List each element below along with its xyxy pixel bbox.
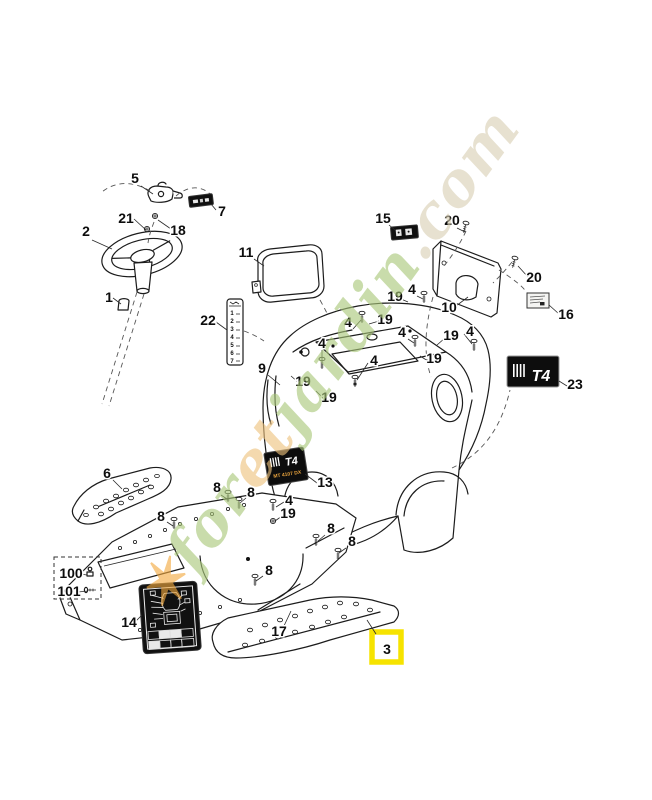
callout-4: 4: [466, 323, 474, 339]
callout-16: 16: [558, 306, 574, 322]
callout-8: 8: [327, 520, 335, 536]
callout-14: 14: [121, 614, 137, 630]
icon-decal-part-15: [390, 225, 418, 240]
callout-4: 4: [344, 314, 352, 330]
parts-diagram-page: 1234567: [0, 0, 652, 800]
callout-3: 3: [383, 641, 391, 657]
callout-6: 6: [103, 465, 111, 481]
t4-logo-text: T4: [532, 368, 551, 385]
callout-7: 7: [218, 203, 226, 219]
shaft-bushing-part-1: [118, 299, 129, 310]
callout-9: 9: [258, 360, 266, 376]
info-decal-part-16: [527, 293, 549, 308]
callout-5: 5: [131, 170, 139, 186]
dash-bezel-part-11: [252, 245, 324, 302]
callout-19: 19: [377, 311, 393, 327]
callout-4: 4: [408, 281, 416, 297]
callout-8: 8: [157, 508, 165, 524]
callout-4: 4: [318, 335, 326, 351]
exploded-parts-drawing: 1234567: [0, 0, 652, 800]
nut-part-18: [152, 213, 157, 218]
callout-15: 15: [375, 210, 391, 226]
callout-19: 19: [387, 288, 403, 304]
callout-8: 8: [213, 479, 221, 495]
callout-1: 1: [105, 289, 113, 305]
callout-18: 18: [170, 222, 186, 238]
callout-19: 19: [280, 505, 296, 521]
callout-17: 17: [271, 623, 287, 639]
warning-decal-part-14: [139, 581, 202, 654]
callout-23: 23: [567, 376, 583, 392]
callout-22: 22: [200, 312, 216, 328]
callout-4: 4: [370, 352, 378, 368]
gear-indicator-decal-part-22: 1234567: [227, 299, 243, 365]
brand-decal-part-7: [188, 194, 213, 208]
callout-10: 10: [441, 299, 457, 315]
ignition-bracket-part-5: [148, 182, 182, 202]
callout-101: 101: [57, 583, 81, 599]
callout-11: 11: [239, 244, 254, 260]
callout-8: 8: [348, 533, 356, 549]
callout-13: 13: [317, 474, 333, 490]
t4-decal-part-23: T4: [507, 356, 559, 387]
callout-19: 19: [295, 373, 311, 389]
callout-100: 100: [59, 565, 83, 581]
callout-8: 8: [247, 484, 255, 500]
callout-19: 19: [426, 350, 442, 366]
callout-19: 19: [321, 389, 337, 405]
callout-19: 19: [443, 327, 459, 343]
callout-20: 20: [526, 269, 542, 285]
model-decal-part-13: T4 MT 4107 DX: [264, 447, 309, 486]
callout-4: 4: [398, 324, 406, 340]
callout-2: 2: [82, 223, 90, 239]
callout-8: 8: [265, 562, 273, 578]
callout-20: 20: [444, 212, 460, 228]
callout-21: 21: [118, 210, 134, 226]
body-label-logo: T4: [284, 455, 299, 469]
steering-wheel-drawing: [97, 224, 187, 406]
